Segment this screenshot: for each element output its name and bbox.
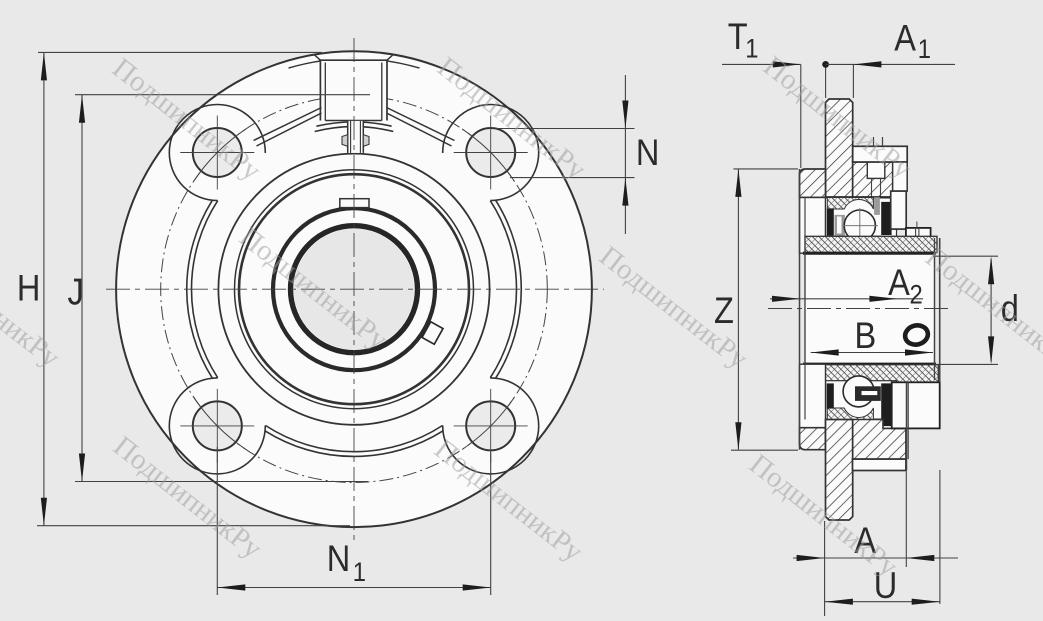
svg-text:J: J <box>68 272 84 313</box>
svg-text:N: N <box>327 538 351 579</box>
svg-text:2: 2 <box>910 280 923 310</box>
svg-text:A: A <box>888 262 910 303</box>
svg-text:N: N <box>636 132 660 173</box>
svg-text:1: 1 <box>918 35 931 65</box>
svg-text:H: H <box>17 268 41 309</box>
svg-text:1: 1 <box>745 34 758 64</box>
svg-text:B: B <box>855 315 877 356</box>
svg-text:A: A <box>894 18 916 59</box>
svg-text:1: 1 <box>353 558 366 588</box>
